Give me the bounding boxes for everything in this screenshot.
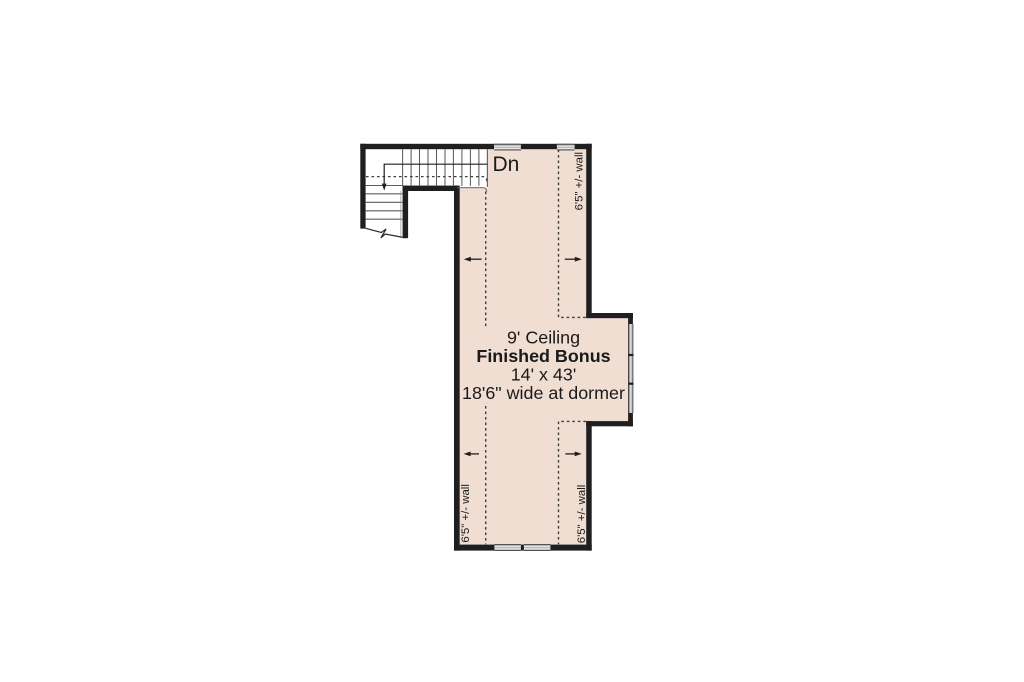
svg-text:9' Ceiling: 9' Ceiling [507,327,580,347]
svg-text:18'6" wide at dormer: 18'6" wide at dormer [462,383,625,403]
svg-text:Dn: Dn [493,153,520,176]
svg-text:6'5" +/- wall: 6'5" +/- wall [576,485,588,543]
svg-text:6'5" +/- wall: 6'5" +/- wall [574,152,586,210]
svg-text:14' x 43': 14' x 43' [511,365,577,385]
svg-text:Finished Bonus: Finished Bonus [476,346,610,366]
svg-text:6'5" +/- wall: 6'5" +/- wall [460,484,472,542]
